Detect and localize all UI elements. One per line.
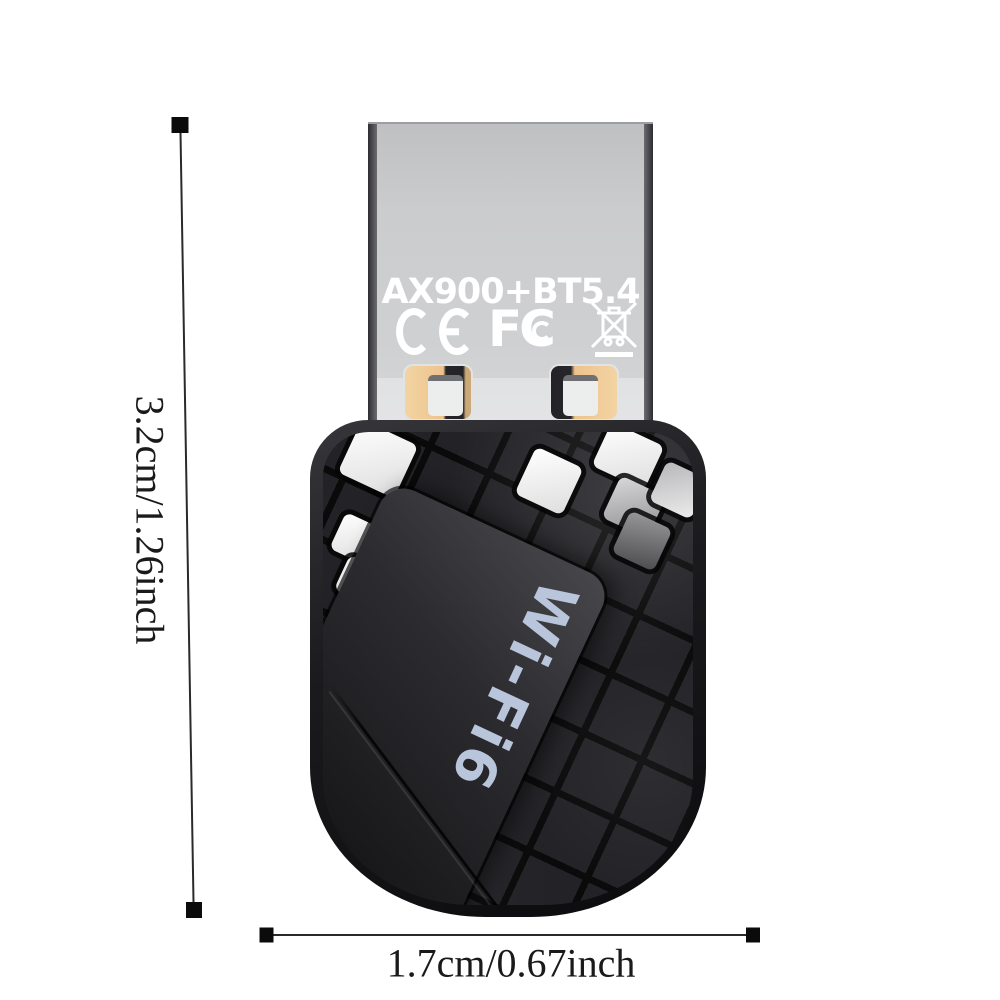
usb-connector: AX900+BT5.4 FC: [368, 122, 653, 436]
height-dimension-label: 3.2cm/1.26inch: [127, 396, 174, 645]
usb-hole-left: [428, 375, 463, 416]
ce-letter-c: [396, 308, 432, 355]
ce-mark-icon: [396, 308, 475, 355]
width-dimension-label: 1.7cm/0.67inch: [387, 940, 636, 987]
usb-hole-right: [563, 375, 598, 416]
adapter-body: Wi-Fi6: [310, 420, 706, 917]
fcc-inner-c: [532, 321, 552, 341]
adapter-face: Wi-Fi6: [323, 432, 693, 905]
usb-edge-left: [368, 124, 377, 436]
product-image: AX900+BT5.4 FC: [0, 0, 1000, 1000]
ce-letter-e: [439, 308, 475, 355]
fcc-mark-icon: FC: [488, 302, 553, 356]
weee-bin-icon: [587, 300, 641, 360]
usb-edge-right: [644, 124, 653, 436]
